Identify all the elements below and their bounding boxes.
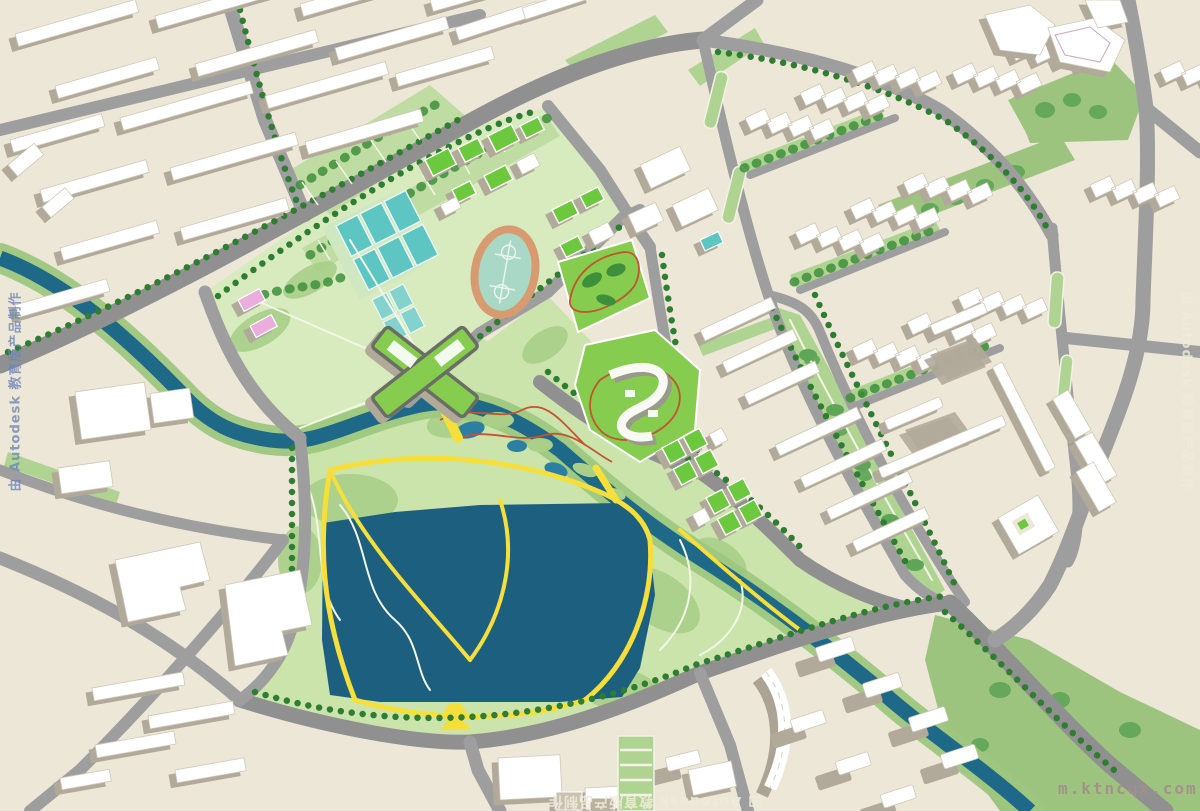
- road-ne-1: [703, 40, 1052, 235]
- curved-building: [758, 672, 785, 795]
- road-bl-3: [0, 470, 283, 540]
- swimming-pool: [700, 232, 723, 251]
- lake: [322, 503, 655, 702]
- ladder-green-strip: [618, 736, 654, 811]
- road-east-horizontal: [1066, 338, 1200, 352]
- road-bc-1: [470, 742, 500, 811]
- urban-master-plan-screenshot: 由 Autodesk 教育版产品制作 由 Autodesk 教育版产品制作 由 …: [0, 0, 1200, 811]
- courtyard-building: [998, 495, 1059, 554]
- master-plan-map: [0, 0, 1200, 811]
